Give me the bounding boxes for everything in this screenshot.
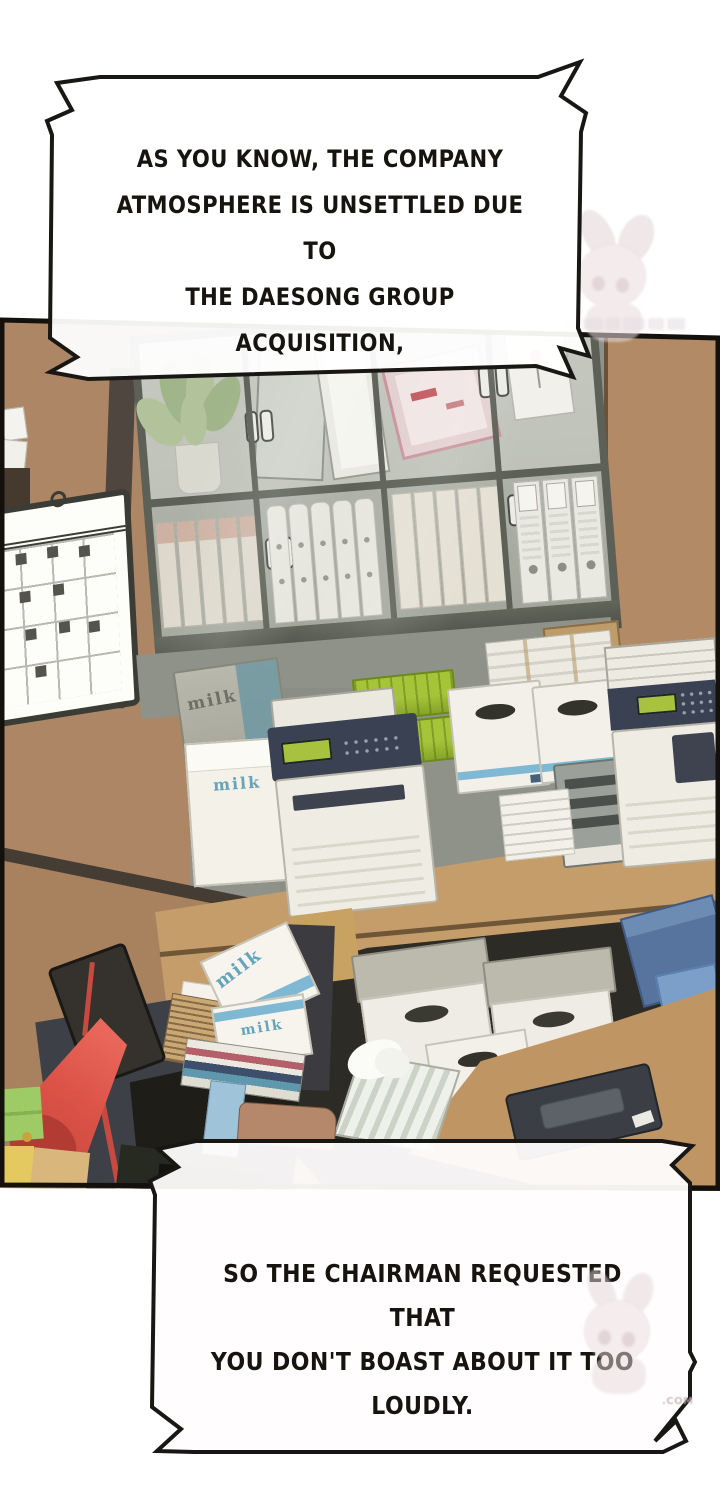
copier-trays (292, 835, 426, 908)
box-logo (530, 774, 541, 783)
milk-logo: milk (240, 1017, 285, 1040)
calendar-mark (15, 553, 26, 566)
calendar-mark (35, 665, 46, 678)
bubble-line: LOUDLY. (200, 1384, 644, 1428)
calendar-whiteboard (0, 488, 141, 728)
copier-inner-slot (672, 732, 718, 783)
copier (604, 638, 720, 865)
copier-lcd (636, 693, 678, 715)
calendar-mark (59, 621, 70, 634)
mascot-eye-icon (592, 276, 605, 291)
copier-lcd (281, 738, 333, 765)
watermark-site-suffix: .COM (662, 1396, 694, 1407)
paper-stack (499, 789, 576, 862)
calendar-mark (79, 545, 90, 558)
copier-output-slot (292, 784, 405, 811)
copier-buttons (341, 732, 403, 758)
sticky-note-tan (30, 1147, 90, 1195)
calendar-mark (19, 591, 30, 604)
calendar-mark (47, 546, 58, 559)
watermark-mascot-top (556, 200, 696, 350)
pinned-paper (0, 406, 28, 441)
milk-logo: milk (212, 772, 261, 794)
notebook-label (539, 1087, 624, 1129)
copier-trays (625, 796, 720, 860)
notebook-sticker (632, 1110, 655, 1128)
mascot-eye-icon (616, 278, 629, 293)
calendar-mark (89, 620, 100, 633)
bubble-line: SO THE CHAIRMAN REQUESTED THAT (200, 1252, 644, 1340)
copier-body (275, 764, 439, 918)
box-handle-hole (404, 1003, 450, 1025)
bubble-line: YOU DON'T BOAST ABOUT IT TOO (200, 1340, 644, 1384)
bubble-line: THE DAESONG GROUP (100, 274, 540, 320)
box-handle-hole (532, 1009, 576, 1029)
milk-logo: milk (211, 944, 266, 993)
box-handle-hole (475, 702, 516, 721)
mascot-head-icon (578, 244, 646, 308)
push-pin (22, 1132, 32, 1142)
sticky-note-yellow (0, 1146, 34, 1192)
speech-bubble-top-text: AS YOU KNOW, THE COMPANY ATMOSPHERE IS U… (100, 136, 540, 366)
calendar-mark (53, 583, 64, 596)
bubble-line: ATMOSPHERE IS UNSETTLED DUE TO (100, 182, 540, 274)
bubble-line: AS YOU KNOW, THE COMPANY (100, 136, 540, 182)
watermark-text-blur (564, 318, 685, 330)
copier-buttons (678, 688, 714, 715)
copier-body (611, 721, 720, 868)
mascot-ear-icon (611, 210, 661, 269)
comic-page: milk milk (0, 0, 720, 1500)
brown-folder (237, 1102, 338, 1151)
box-handle-hole (557, 698, 598, 717)
milk-logo: milk (186, 686, 240, 715)
mascot-ear-icon (573, 205, 623, 266)
speech-bubble-bottom-text: SO THE CHAIRMAN REQUESTED THAT YOU DON'T… (200, 1252, 644, 1428)
calendar-mark (25, 628, 36, 641)
bubble-line: ACQUISITION, (100, 320, 540, 366)
copier (264, 685, 436, 915)
